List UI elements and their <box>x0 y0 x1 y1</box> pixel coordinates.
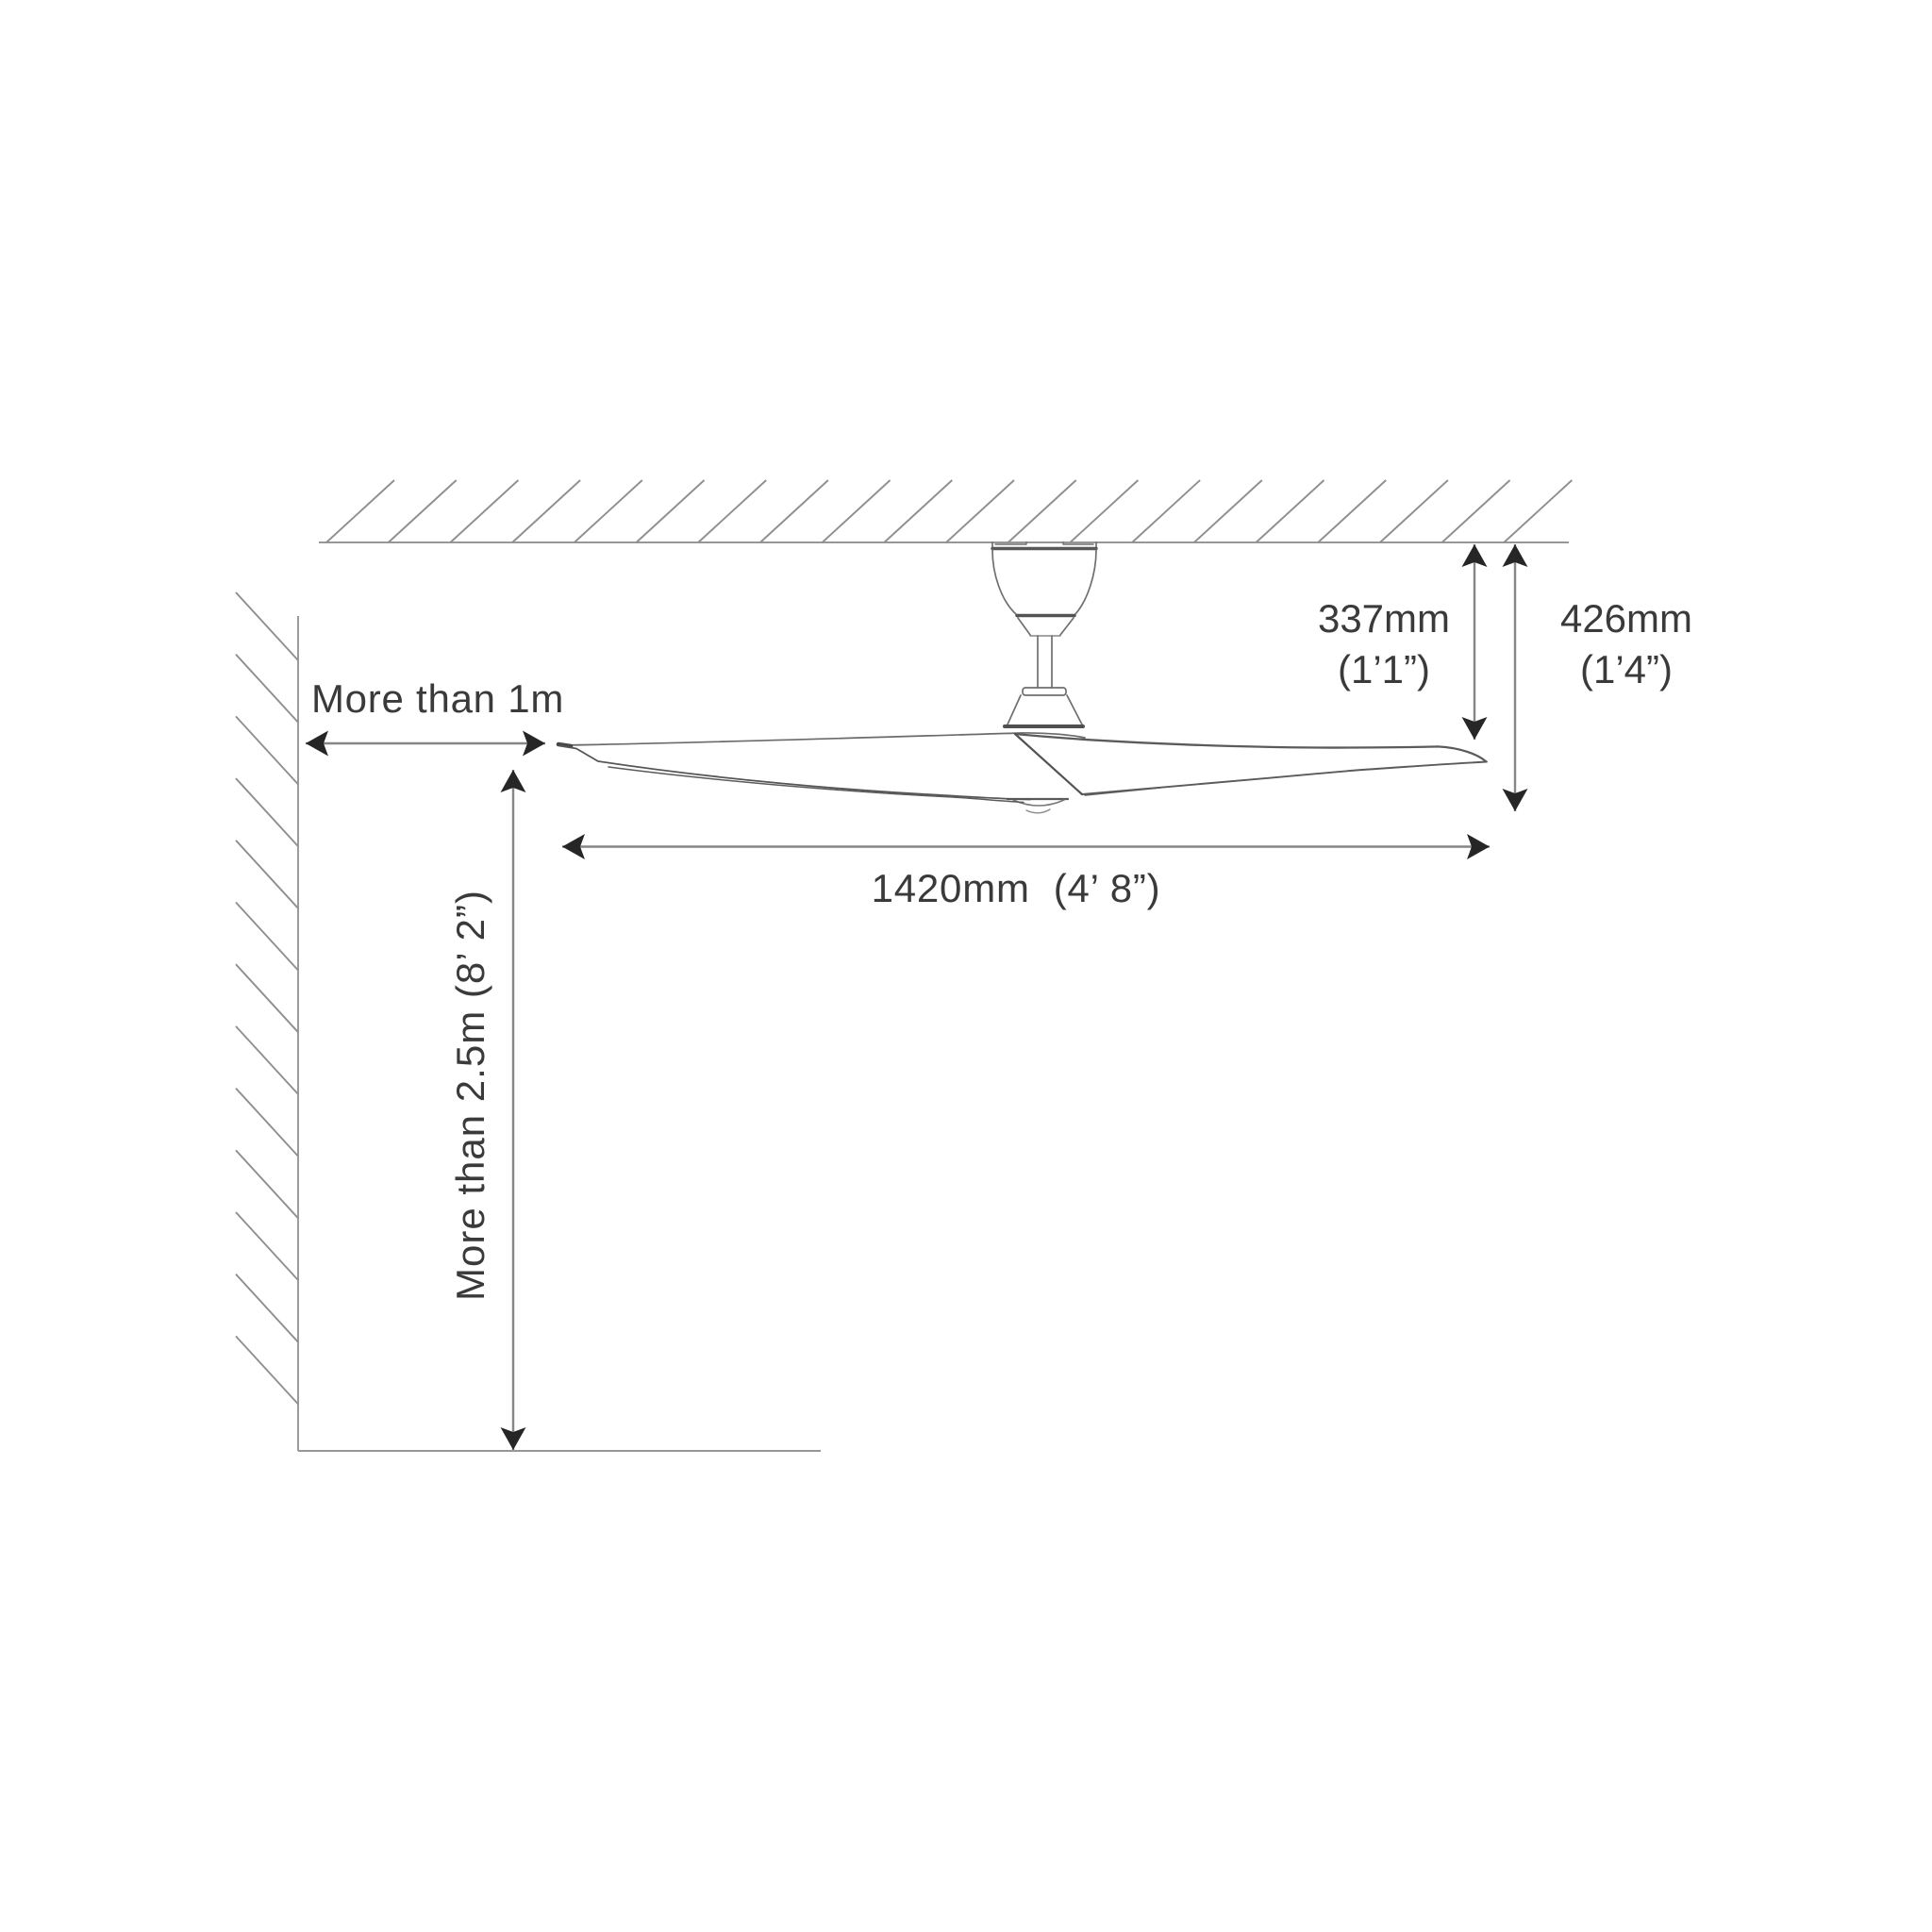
svg-text:More than 2.5m (8’ 2”): More than 2.5m (8’ 2”) <box>448 890 492 1301</box>
svg-text:337mm: 337mm <box>1318 596 1450 641</box>
svg-text:1420mm (4’ 8”): 1420mm (4’ 8”) <box>872 866 1161 910</box>
svg-text:More than 1m: More than 1m <box>311 676 564 721</box>
svg-text:(1’1”): (1’1”) <box>1338 647 1430 691</box>
svg-text:426mm: 426mm <box>1560 596 1692 641</box>
svg-text:(1’4”): (1’4”) <box>1580 647 1673 691</box>
